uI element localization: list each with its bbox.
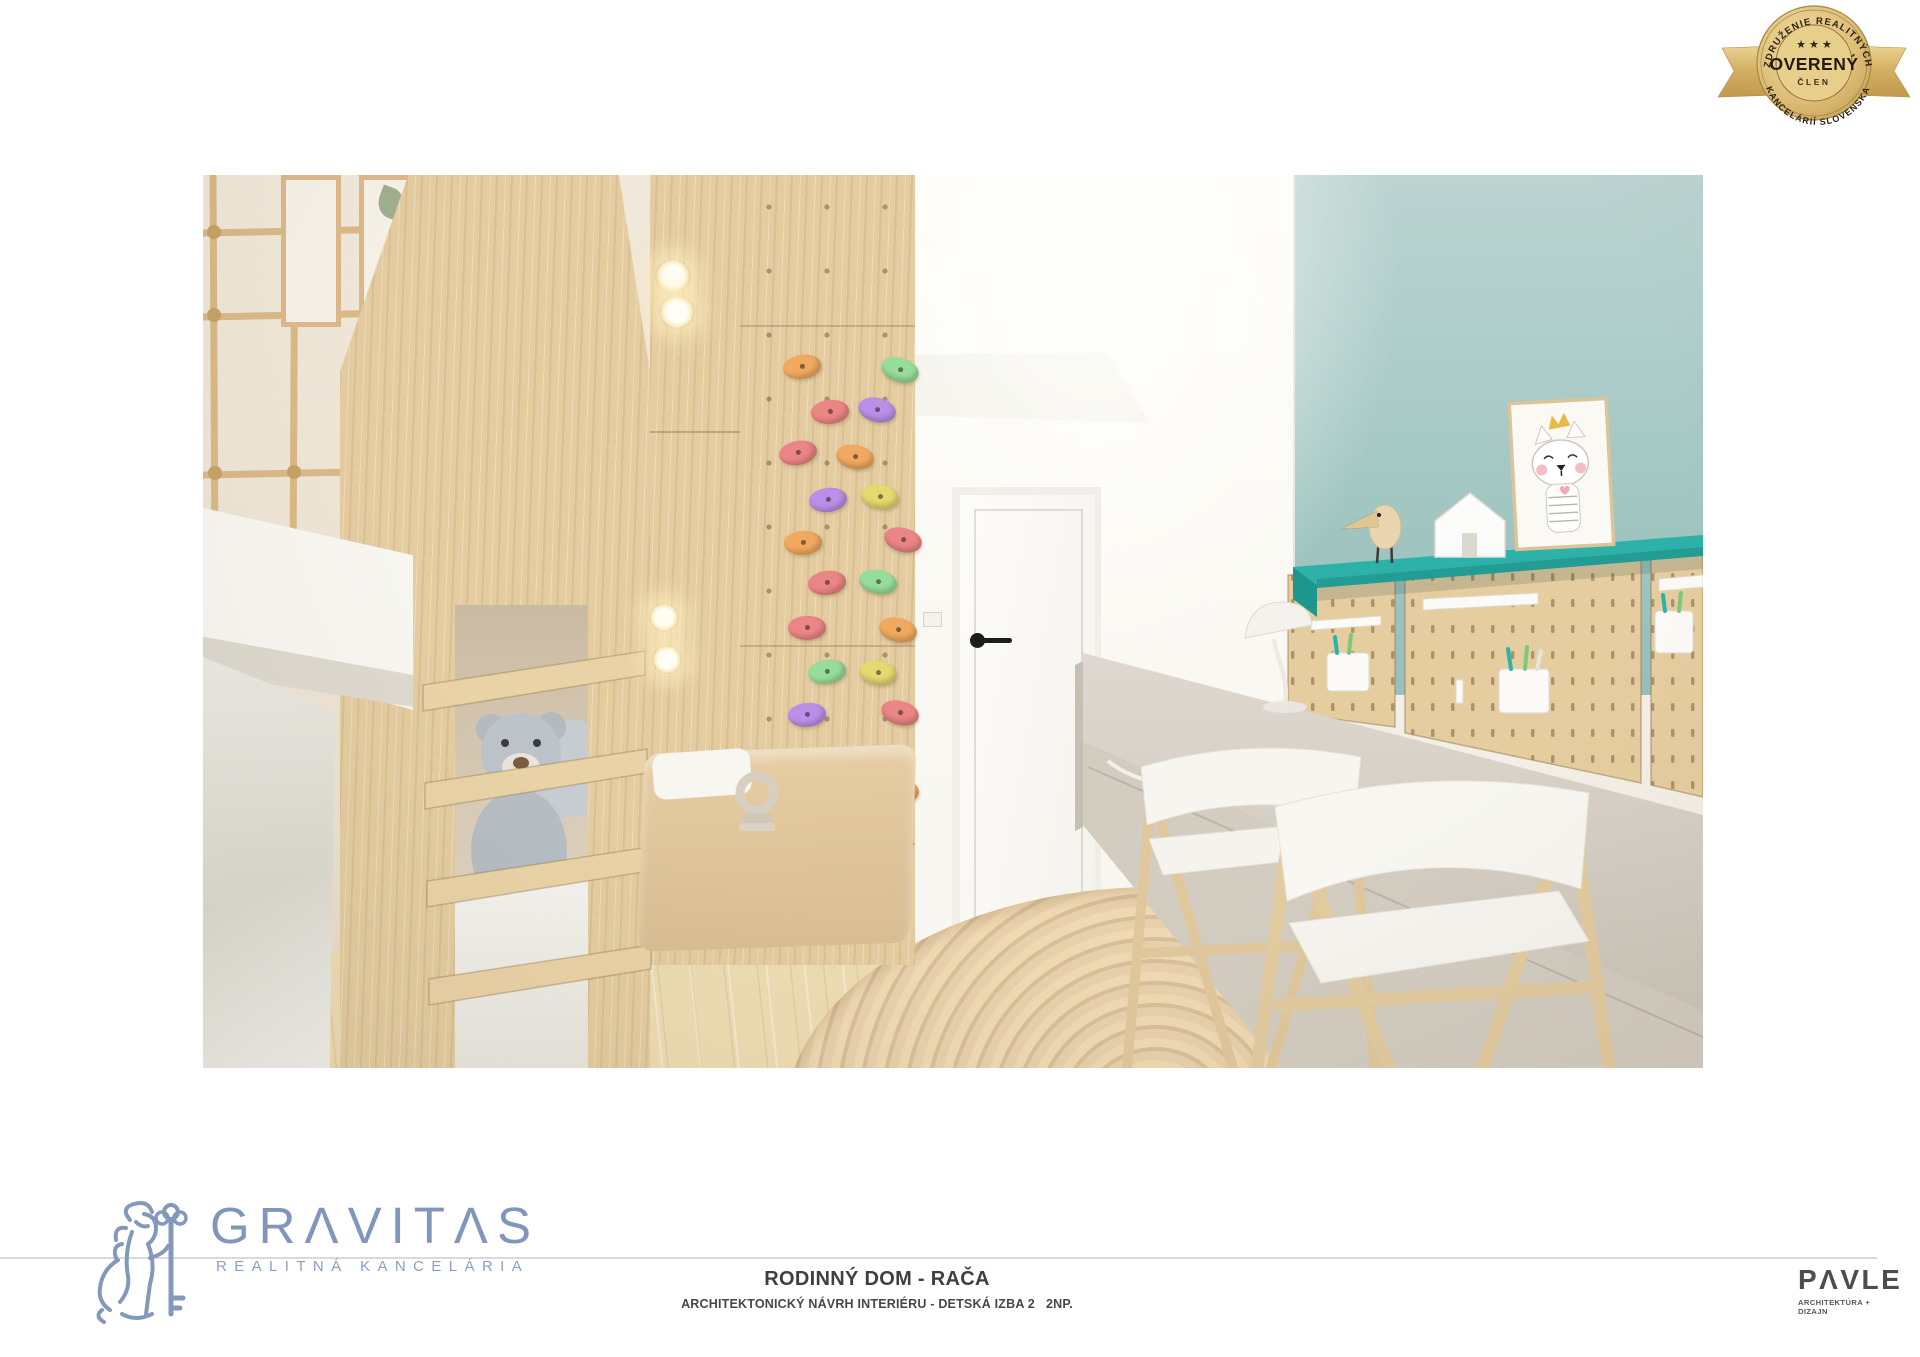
gravitas-tagline: REALITNÁ KANCELÁRIA xyxy=(216,1258,529,1275)
house-shaped-box xyxy=(1435,493,1505,557)
drawing-subtitle: ARCHITEKTONICKÝ NÁVRH INTERIÉRU - DETSKÁ… xyxy=(577,1297,1177,1311)
desk-area xyxy=(203,175,1703,1068)
gravitas-logo: GRΛVITΛS REALITNÁ KANCELÁRIA xyxy=(92,1196,612,1326)
lion-key-icon xyxy=(92,1198,192,1328)
drawing-caption: RODINNÝ DOM - RAČA ARCHITEKTONICKÝ NÁVRH… xyxy=(577,1268,1177,1311)
interior-render xyxy=(203,175,1703,1068)
pavle-tagline: ARCHITEKTÚRA + DIZAJN xyxy=(1798,1298,1898,1316)
gravitas-brand: GRΛVITΛS xyxy=(210,1196,540,1255)
badge-subtitle: ČLEN xyxy=(1797,76,1830,87)
badge-stars: ★ ★ ★ xyxy=(1796,39,1832,51)
pavle-brand: PΛVLE xyxy=(1798,1264,1898,1296)
overeny-badge: ZDRUŽENIE REALITNÝCH KANCELÁRIÍ SLOVENSK… xyxy=(1700,4,1920,126)
presentation-page: ZDRUŽENIE REALITNÝCH KANCELÁRIÍ SLOVENSK… xyxy=(0,0,1920,1357)
pavle-logo: PΛVLE ARCHITEKTÚRA + DIZAJN xyxy=(1798,1264,1898,1316)
badge-title: OVERENÝ xyxy=(1769,53,1858,74)
cat-picture-frame xyxy=(1509,399,1614,550)
project-title: RODINNÝ DOM - RAČA xyxy=(577,1268,1177,1291)
wooden-bird-figurine xyxy=(1341,505,1401,563)
